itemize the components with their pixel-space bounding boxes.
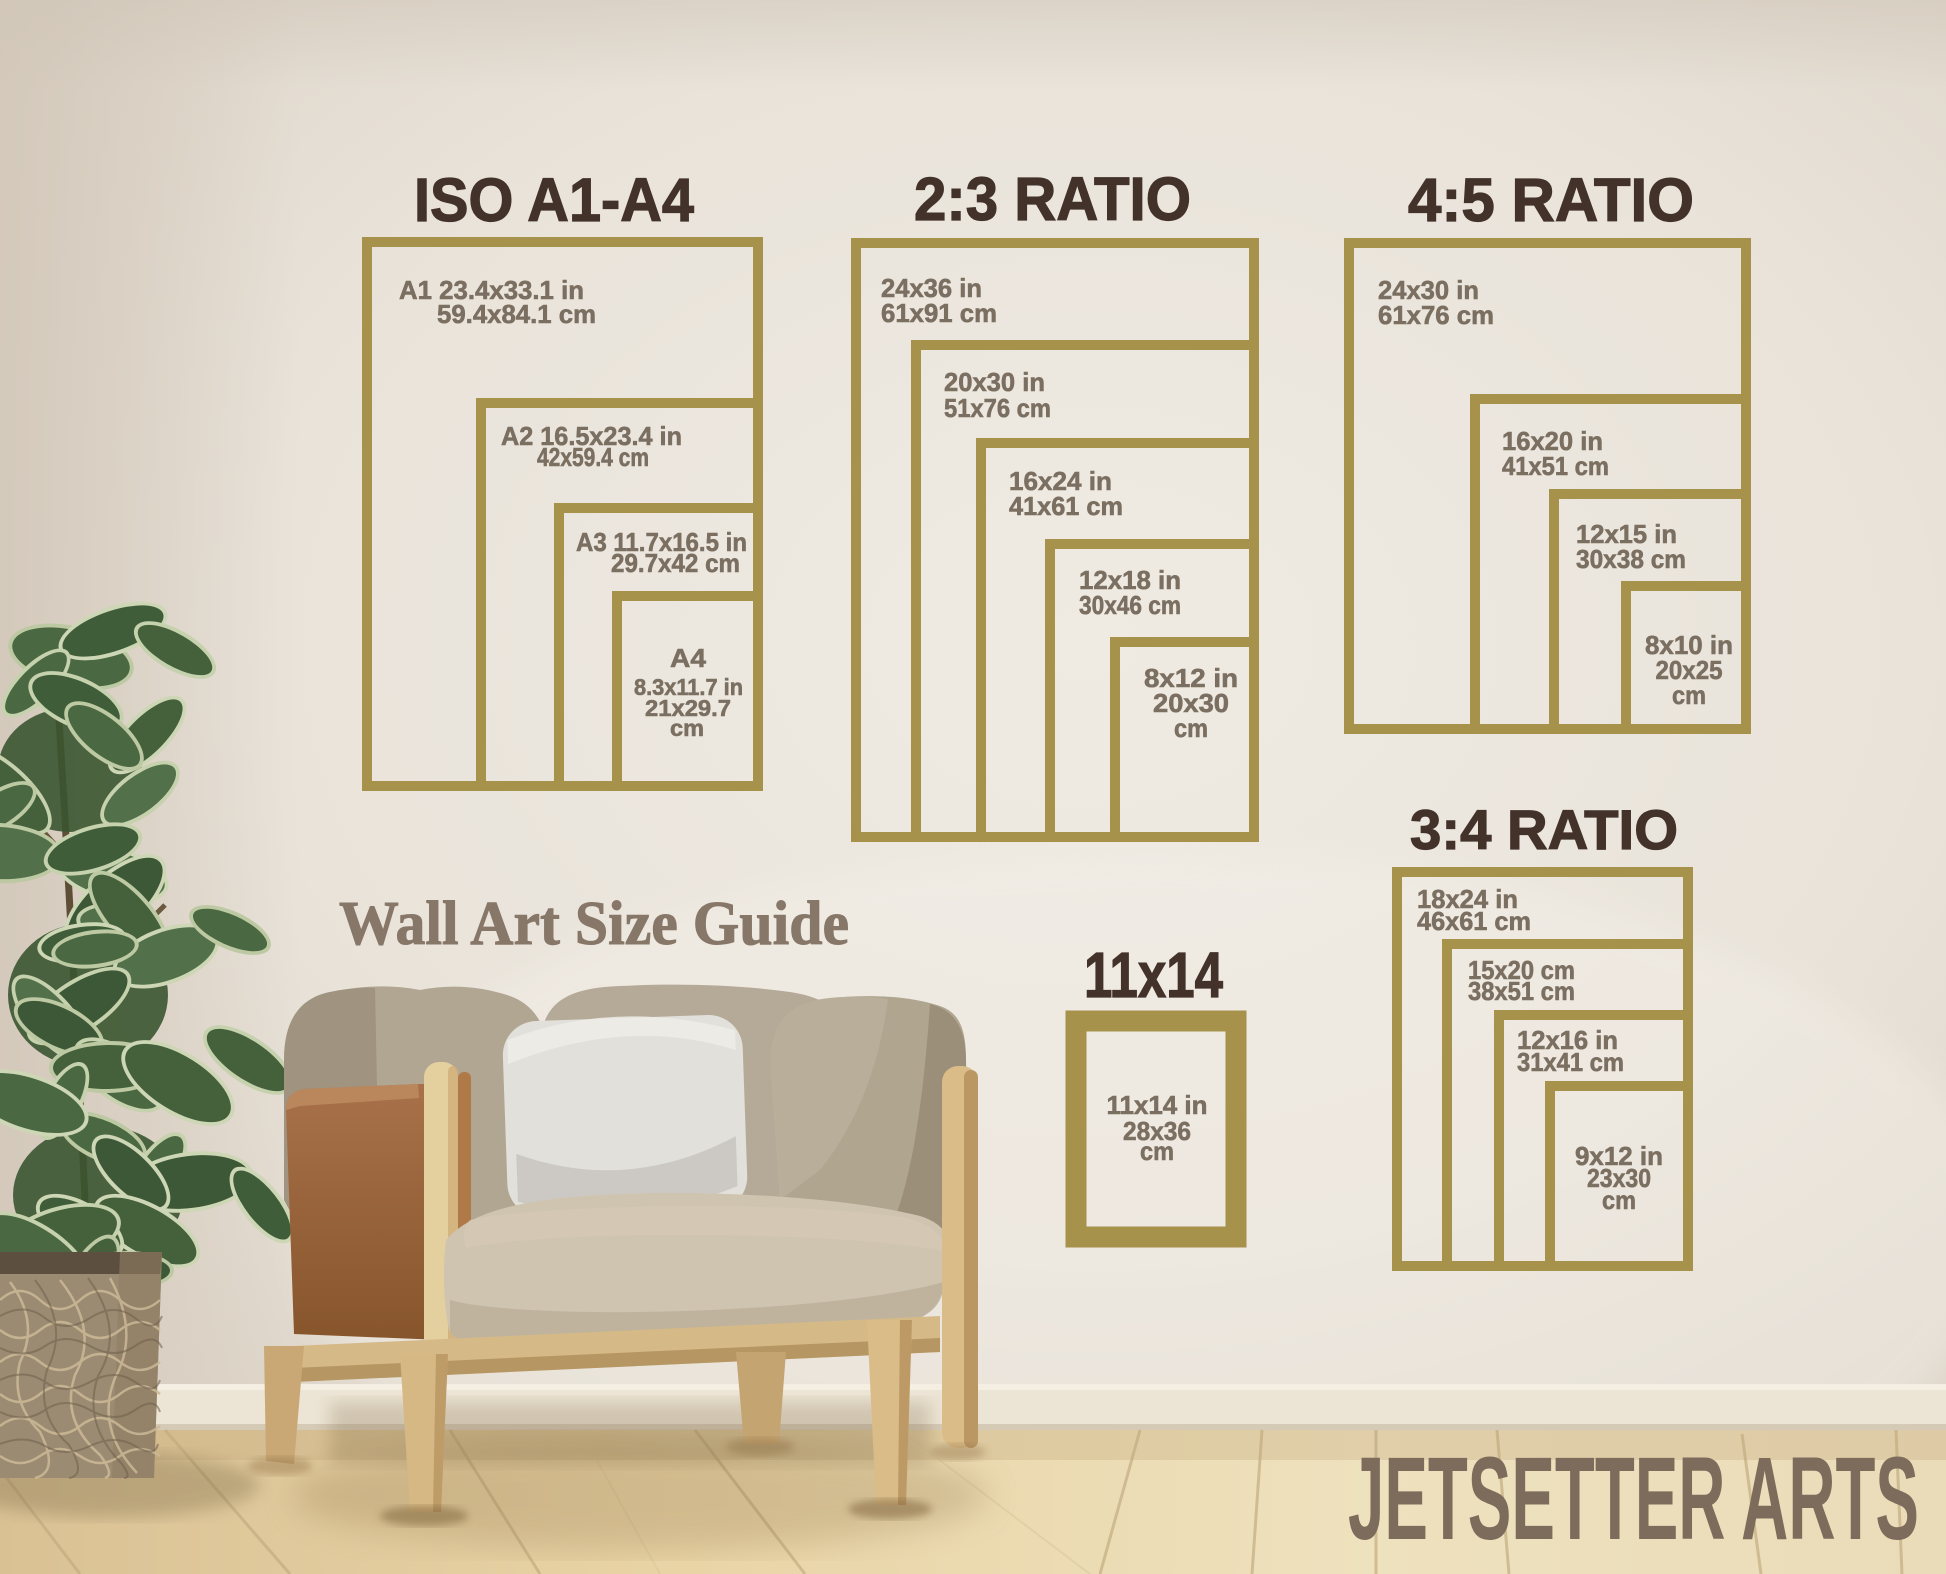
svg-text:2:3 RATIO: 2:3 RATIO [914, 165, 1191, 233]
svg-text:59.4x84.1 cm: 59.4x84.1 cm [437, 299, 596, 329]
svg-text:30x46 cm: 30x46 cm [1079, 590, 1181, 620]
svg-text:cm: cm [1672, 680, 1706, 710]
svg-text:3:4 RATIO: 3:4 RATIO [1410, 798, 1678, 861]
svg-text:11x14: 11x14 [1084, 939, 1223, 1011]
svg-text:ISO A1-A4: ISO A1-A4 [414, 166, 694, 234]
svg-text:A4: A4 [670, 643, 707, 673]
svg-text:4:5 RATIO: 4:5 RATIO [1408, 166, 1694, 234]
svg-text:cm: cm [1602, 1185, 1636, 1215]
svg-text:41x51 cm: 41x51 cm [1502, 451, 1609, 481]
svg-text:38x51 cm: 38x51 cm [1468, 976, 1575, 1006]
svg-text:41x61 cm: 41x61 cm [1009, 491, 1123, 521]
svg-text:cm: cm [670, 715, 704, 741]
svg-text:51x76 cm: 51x76 cm [944, 393, 1051, 423]
svg-text:JETSETTER ARTS: JETSETTER ARTS [1348, 1433, 1919, 1565]
svg-text:Wall Art Size Guide: Wall Art Size Guide [339, 890, 849, 958]
svg-text:cm: cm [1174, 713, 1208, 743]
svg-text:61x91 cm: 61x91 cm [881, 298, 997, 328]
svg-text:46x61 cm: 46x61 cm [1417, 906, 1531, 936]
svg-text:30x38 cm: 30x38 cm [1576, 544, 1686, 574]
svg-text:31x41 cm: 31x41 cm [1517, 1047, 1624, 1077]
svg-text:42x59.4 cm: 42x59.4 cm [537, 442, 649, 472]
svg-text:cm: cm [1140, 1136, 1174, 1166]
svg-text:29.7x42 cm: 29.7x42 cm [611, 548, 740, 578]
svg-text:61x76 cm: 61x76 cm [1378, 300, 1494, 330]
